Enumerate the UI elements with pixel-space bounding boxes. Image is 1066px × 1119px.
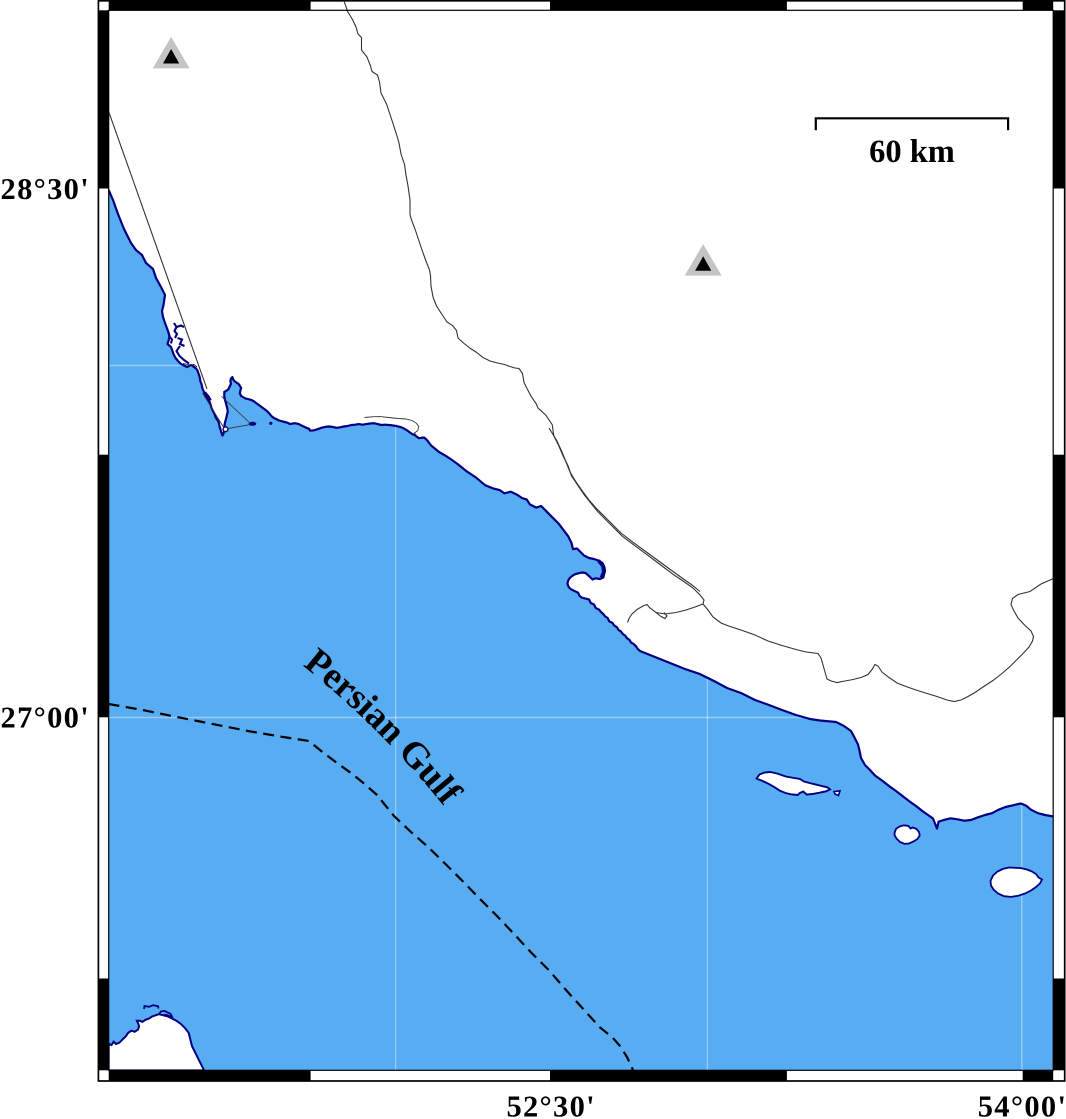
svg-text:52°30': 52°30'	[506, 1089, 595, 1119]
svg-text:54°00': 54°00'	[978, 1089, 1066, 1119]
svg-text:60 km: 60 km	[869, 134, 955, 170]
svg-text:27°00': 27°00'	[1, 701, 90, 735]
svg-text:28°30': 28°30'	[1, 172, 90, 206]
